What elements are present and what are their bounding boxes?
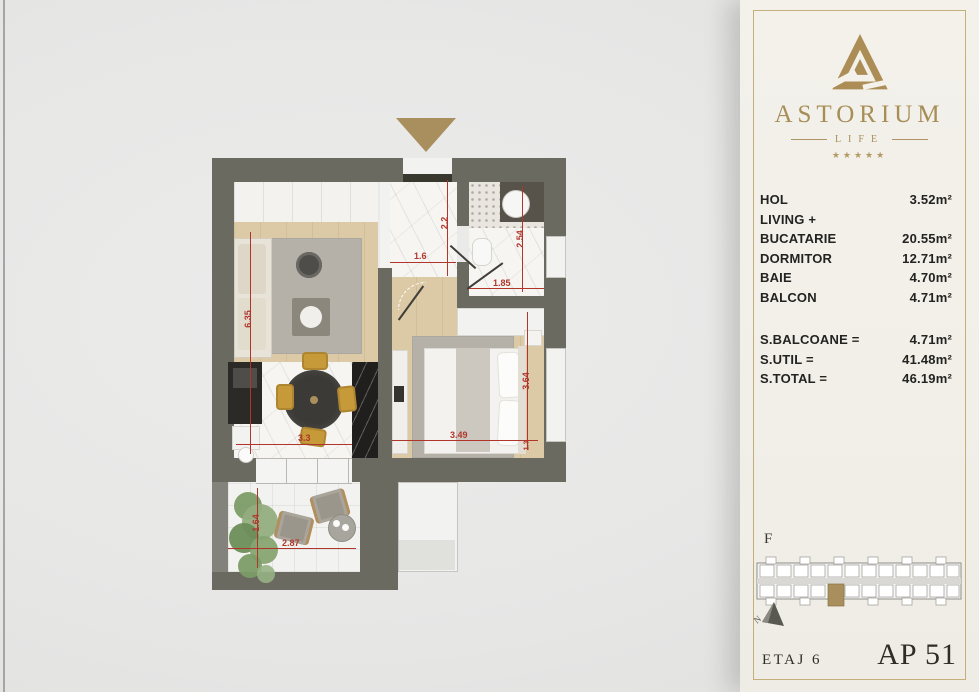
adjacent-balcony-shade xyxy=(399,540,455,570)
balcony-wall-right xyxy=(360,482,398,572)
side-table xyxy=(296,252,322,278)
headboard xyxy=(518,346,526,454)
total-row: S.BALCOANE = 4.71m² xyxy=(760,330,952,350)
room-row: BUCATARIE 20.55m² xyxy=(760,229,952,249)
apartment-label: AP 51 xyxy=(877,638,957,672)
partition-living-hall xyxy=(378,268,392,458)
total-row: S.TOTAL = 46.19m² xyxy=(760,369,952,389)
dim-line xyxy=(228,548,356,549)
dim-line xyxy=(390,262,456,263)
wall-top xyxy=(212,158,566,182)
dim-label-bedroom-width: 3.49 xyxy=(450,430,468,440)
room-label: BAIE xyxy=(760,268,792,288)
entrance-lintel xyxy=(403,174,452,182)
tagline-line xyxy=(892,139,928,140)
totals-list: S.BALCOANE = 4.71m² S.UTIL = 41.48m² S.T… xyxy=(760,330,952,389)
balcony-cup xyxy=(342,524,349,531)
dim-label-hall-depth: 2.2 xyxy=(439,217,449,230)
bedroom-window xyxy=(546,348,566,442)
total-label: S.UTIL = xyxy=(760,350,814,370)
brand-tagline: LIFE xyxy=(835,134,884,145)
dining-centerpiece xyxy=(310,396,318,404)
total-label: S.TOTAL = xyxy=(760,369,827,389)
cooktop xyxy=(233,368,257,388)
living-cabinet xyxy=(234,182,378,223)
dim-label-hall-width: 1.6 xyxy=(414,251,427,261)
north-arrow-icon: N xyxy=(752,596,792,634)
page-edge-line xyxy=(3,0,5,692)
tv-unit xyxy=(394,386,404,402)
dim-label-bath-depth: 2.54 xyxy=(515,230,525,248)
room-list: HOL 3.52m² LIVING + BUCATARIE 20.55m² DO… xyxy=(760,190,952,307)
room-label: HOL xyxy=(760,190,788,210)
wall-hall-bath-upper xyxy=(457,182,469,226)
coffee-table-tray xyxy=(300,306,322,328)
bedroom-desk xyxy=(392,350,408,454)
total-label: S.BALCOANE = xyxy=(760,330,860,350)
brand-tagline-row: LIFE xyxy=(740,134,979,145)
entrance-arrow-icon xyxy=(396,118,456,152)
info-panel: ASTORIUM LIFE ★★★★★ HOL 3.52m² LIVING + … xyxy=(740,0,979,692)
dining-chair xyxy=(337,385,358,413)
highlighted-unit xyxy=(828,584,844,606)
wall-bottom-right xyxy=(352,458,566,482)
room-label: LIVING + xyxy=(760,210,816,230)
dim-label-bedroom-depth: 3.64 xyxy=(521,372,531,390)
room-area: 12.71m² xyxy=(902,249,952,269)
dining-chair xyxy=(302,352,328,370)
sofa-cushion xyxy=(238,244,266,294)
wall-bottom-left xyxy=(212,458,258,482)
room-row: DORMITOR 12.71m² xyxy=(760,249,952,269)
total-value: 41.48m² xyxy=(902,350,952,370)
brand-name: ASTORIUM xyxy=(740,101,979,129)
room-area: 3.52m² xyxy=(910,190,952,210)
dim-label-kitchen-width: 3.3 xyxy=(298,433,311,443)
toilet xyxy=(472,238,492,266)
room-row: BAIE 4.70m² xyxy=(760,268,952,288)
brand-block: ASTORIUM LIFE ★★★★★ xyxy=(740,30,979,161)
partition-light xyxy=(380,182,390,270)
dim-line xyxy=(236,444,352,445)
dim-line xyxy=(392,440,538,441)
room-area: 4.71m² xyxy=(910,288,952,308)
room-row: BALCON 4.71m² xyxy=(760,288,952,308)
tagline-line xyxy=(791,139,827,140)
wall-bath-bottom xyxy=(457,296,566,308)
svg-text:N: N xyxy=(752,613,764,625)
bedroom-door-arc xyxy=(398,282,426,310)
building-label: F xyxy=(764,531,772,548)
room-label: BALCON xyxy=(760,288,817,308)
panel-footer: ETAJ 6 AP 51 xyxy=(762,638,957,672)
dim-label-living-depth: 6.35 xyxy=(243,310,253,328)
room-label: DORMITOR xyxy=(760,249,832,269)
total-value: 46.19m² xyxy=(902,369,952,389)
dim-label-bath-width: 1.85 xyxy=(493,278,511,288)
balcony-cup xyxy=(333,520,340,527)
room-area: 4.70m² xyxy=(910,268,952,288)
room-row: LIVING + xyxy=(760,210,952,230)
total-row: S.UTIL = 41.48m² xyxy=(760,350,952,370)
dining-chair xyxy=(276,384,294,410)
room-area: 20.55m² xyxy=(902,229,952,249)
floor-label: ETAJ 6 xyxy=(762,652,822,669)
brand-stars: ★★★★★ xyxy=(740,150,979,161)
bath-sink xyxy=(502,190,530,218)
balcony-sliding-door xyxy=(256,458,352,484)
dim-label-bedroom-nook: 1.3 xyxy=(523,441,530,451)
dim-line xyxy=(469,288,544,289)
dim-line xyxy=(250,232,251,454)
wall-left xyxy=(212,158,234,482)
total-value: 4.71m² xyxy=(910,330,952,350)
bathroom-window xyxy=(546,236,566,278)
kitchen-sink xyxy=(238,447,254,463)
dim-label-balcony-depth: 1.64 xyxy=(251,514,261,532)
dim-label-balcony-width: 2.87 xyxy=(282,538,300,548)
room-label: BUCATARIE xyxy=(760,229,836,249)
room-row: HOL 3.52m² xyxy=(760,190,952,210)
page: 6.35 3.3 2.2 1.6 2.54 1.85 3.49 3.64 1.3… xyxy=(0,0,979,692)
astorium-logo-icon xyxy=(827,30,893,96)
